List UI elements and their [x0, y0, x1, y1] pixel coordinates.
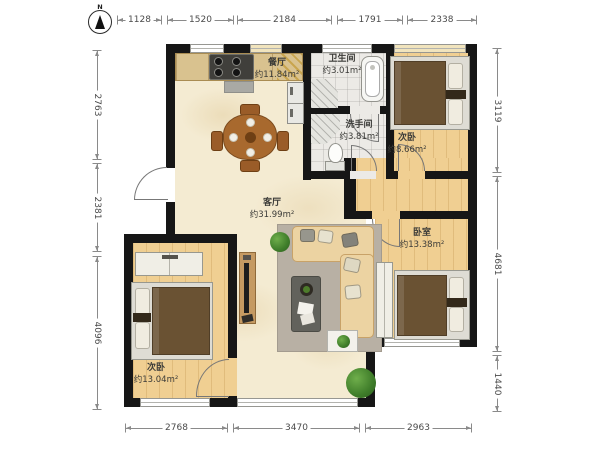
plate: [246, 118, 255, 127]
dimension-value: 2338: [428, 15, 457, 25]
label-washroom: 洗手间 约3.81m²: [333, 120, 385, 143]
dimension-value: 2381: [92, 193, 102, 222]
bedroom-tr-door-opening: [398, 171, 425, 179]
room-area: 约3.81m²: [333, 132, 385, 143]
sofa-side-table: [327, 330, 358, 352]
stove-burner: [232, 68, 241, 77]
headboard-accent: [447, 298, 467, 307]
window-dining-bay: [250, 44, 282, 53]
stove-burner: [232, 57, 241, 66]
dimension-top-4: 1791: [337, 13, 403, 27]
dimension-right-2: 4681: [490, 176, 504, 352]
window-kitchen: [190, 44, 224, 53]
headboard-accent: [133, 313, 151, 322]
bathroom-door-opening: [350, 106, 380, 114]
room-name: 餐厅: [248, 58, 306, 70]
dining-chair: [277, 131, 289, 151]
stove-burner: [214, 68, 223, 77]
label-bedroom-right: 卧室 约13.38m²: [396, 228, 448, 251]
toilet-bowl: [328, 143, 343, 163]
compass-icon: N: [88, 10, 112, 34]
window-living: [237, 398, 358, 407]
room-area: 约8.66m²: [384, 145, 430, 156]
sofa-pillow: [300, 229, 315, 242]
dining-table: [223, 114, 277, 160]
wardrobe-bedroom-bl: [135, 252, 203, 276]
wall-bedroom-bl-top: [124, 234, 237, 243]
sofa-pillow: [344, 284, 361, 300]
dimension-right-1: 3119: [490, 48, 504, 173]
wall-left-upper: [166, 44, 175, 243]
bed-pillow: [135, 288, 150, 315]
room-area: 约31.99m²: [244, 210, 300, 221]
plate: [229, 133, 238, 142]
dimension-value: 2184: [270, 15, 299, 25]
compass-north-label: N: [97, 3, 102, 11]
headboard-accent: [446, 90, 466, 99]
dimension-top-1: 1128: [117, 13, 162, 27]
outside-area: [375, 347, 480, 398]
dimension-value: 1791: [356, 15, 385, 25]
dimension-value: 3119: [492, 96, 502, 125]
tv-cabinet: [239, 252, 256, 324]
dimension-left-3: 4096: [90, 256, 104, 410]
entrance-door-opening: [166, 168, 175, 202]
dimension-value: 3470: [282, 423, 311, 433]
dimension-value: 2963: [404, 423, 433, 433]
floorplan-canvas: 餐厅 约11.84m² 卫生间 约3.01m² 洗手间 约3.81m² 次卧 约…: [0, 0, 600, 450]
bedroom-right-door-opening: [372, 211, 400, 219]
label-bathroom: 卫生间 约3.01m²: [316, 54, 368, 77]
dimension-bottom-1: 2768: [125, 421, 228, 435]
dimension-right-3: 1440: [490, 355, 504, 412]
sofa-pillow: [343, 256, 362, 273]
room-area: 约13.04m²: [130, 375, 182, 386]
label-dining: 餐厅 约11.84m²: [248, 58, 306, 81]
dimension-bottom-2: 3470: [233, 421, 360, 435]
room-name: 次卧: [130, 363, 182, 375]
dimension-left-1: 2763: [90, 50, 104, 160]
dimension-value: 2763: [92, 91, 102, 120]
label-bedroom-bottom-left: 次卧 约13.04m²: [130, 363, 182, 386]
bedroom-bl-door-opening: [228, 358, 237, 396]
dining-chair: [211, 131, 223, 151]
dimension-value: 4681: [492, 250, 502, 279]
entrance-door-arc: [134, 167, 167, 200]
bed-blanket: [152, 287, 210, 355]
room-name: 洗手间: [333, 120, 385, 132]
bed-pillow: [135, 322, 150, 349]
oven: [224, 81, 254, 93]
room-area: 约3.01m²: [316, 66, 368, 77]
room-name: 客厅: [244, 198, 300, 210]
dining-chair: [240, 160, 260, 172]
window-bedroom-tr-bay: [394, 44, 466, 53]
sofa-pillow: [341, 232, 359, 249]
room-name: 次卧: [384, 133, 430, 145]
dimension-value: 4096: [92, 319, 102, 348]
dimension-value: 1440: [492, 369, 502, 398]
bed-pillow: [449, 307, 464, 332]
stove-burner: [214, 57, 223, 66]
bed-blanket: [397, 275, 447, 336]
compass-needle: [95, 15, 105, 29]
coffee-table: [291, 276, 321, 332]
room-name: 卫生间: [316, 54, 368, 66]
floor-plant: [346, 368, 376, 398]
window-bathroom: [322, 44, 372, 53]
bed-pillow: [448, 99, 463, 125]
sofa-pillow: [317, 229, 334, 244]
dimension-value: 1128: [125, 15, 154, 25]
plate: [263, 133, 272, 142]
room-area: 约11.84m²: [248, 70, 306, 81]
dimension-value: 2768: [162, 423, 191, 433]
label-living: 客厅 约31.99m²: [244, 198, 300, 221]
bed-blanket: [394, 61, 446, 125]
dimension-top-5: 2338: [407, 13, 477, 27]
dimension-top-2: 1520: [167, 13, 234, 27]
room-name: 卧室: [396, 228, 448, 240]
washroom-door-opening: [350, 171, 376, 179]
dimension-value: 1520: [186, 15, 215, 25]
dimension-bottom-3: 2963: [365, 421, 472, 435]
wardrobe-bedroom-right: [376, 262, 393, 338]
window-bedroom-bl: [140, 398, 210, 407]
label-bedroom-top-right: 次卧 约8.66m²: [384, 133, 430, 156]
room-area: 约13.38m²: [396, 240, 448, 251]
bedroom-bl-door-leaf: [196, 396, 229, 397]
dimension-left-2: 2381: [90, 163, 104, 252]
bed-pillow: [448, 63, 463, 89]
plate: [246, 148, 255, 157]
dimension-top-3: 2184: [237, 13, 332, 27]
plant: [270, 232, 290, 252]
fridge: [287, 82, 304, 124]
